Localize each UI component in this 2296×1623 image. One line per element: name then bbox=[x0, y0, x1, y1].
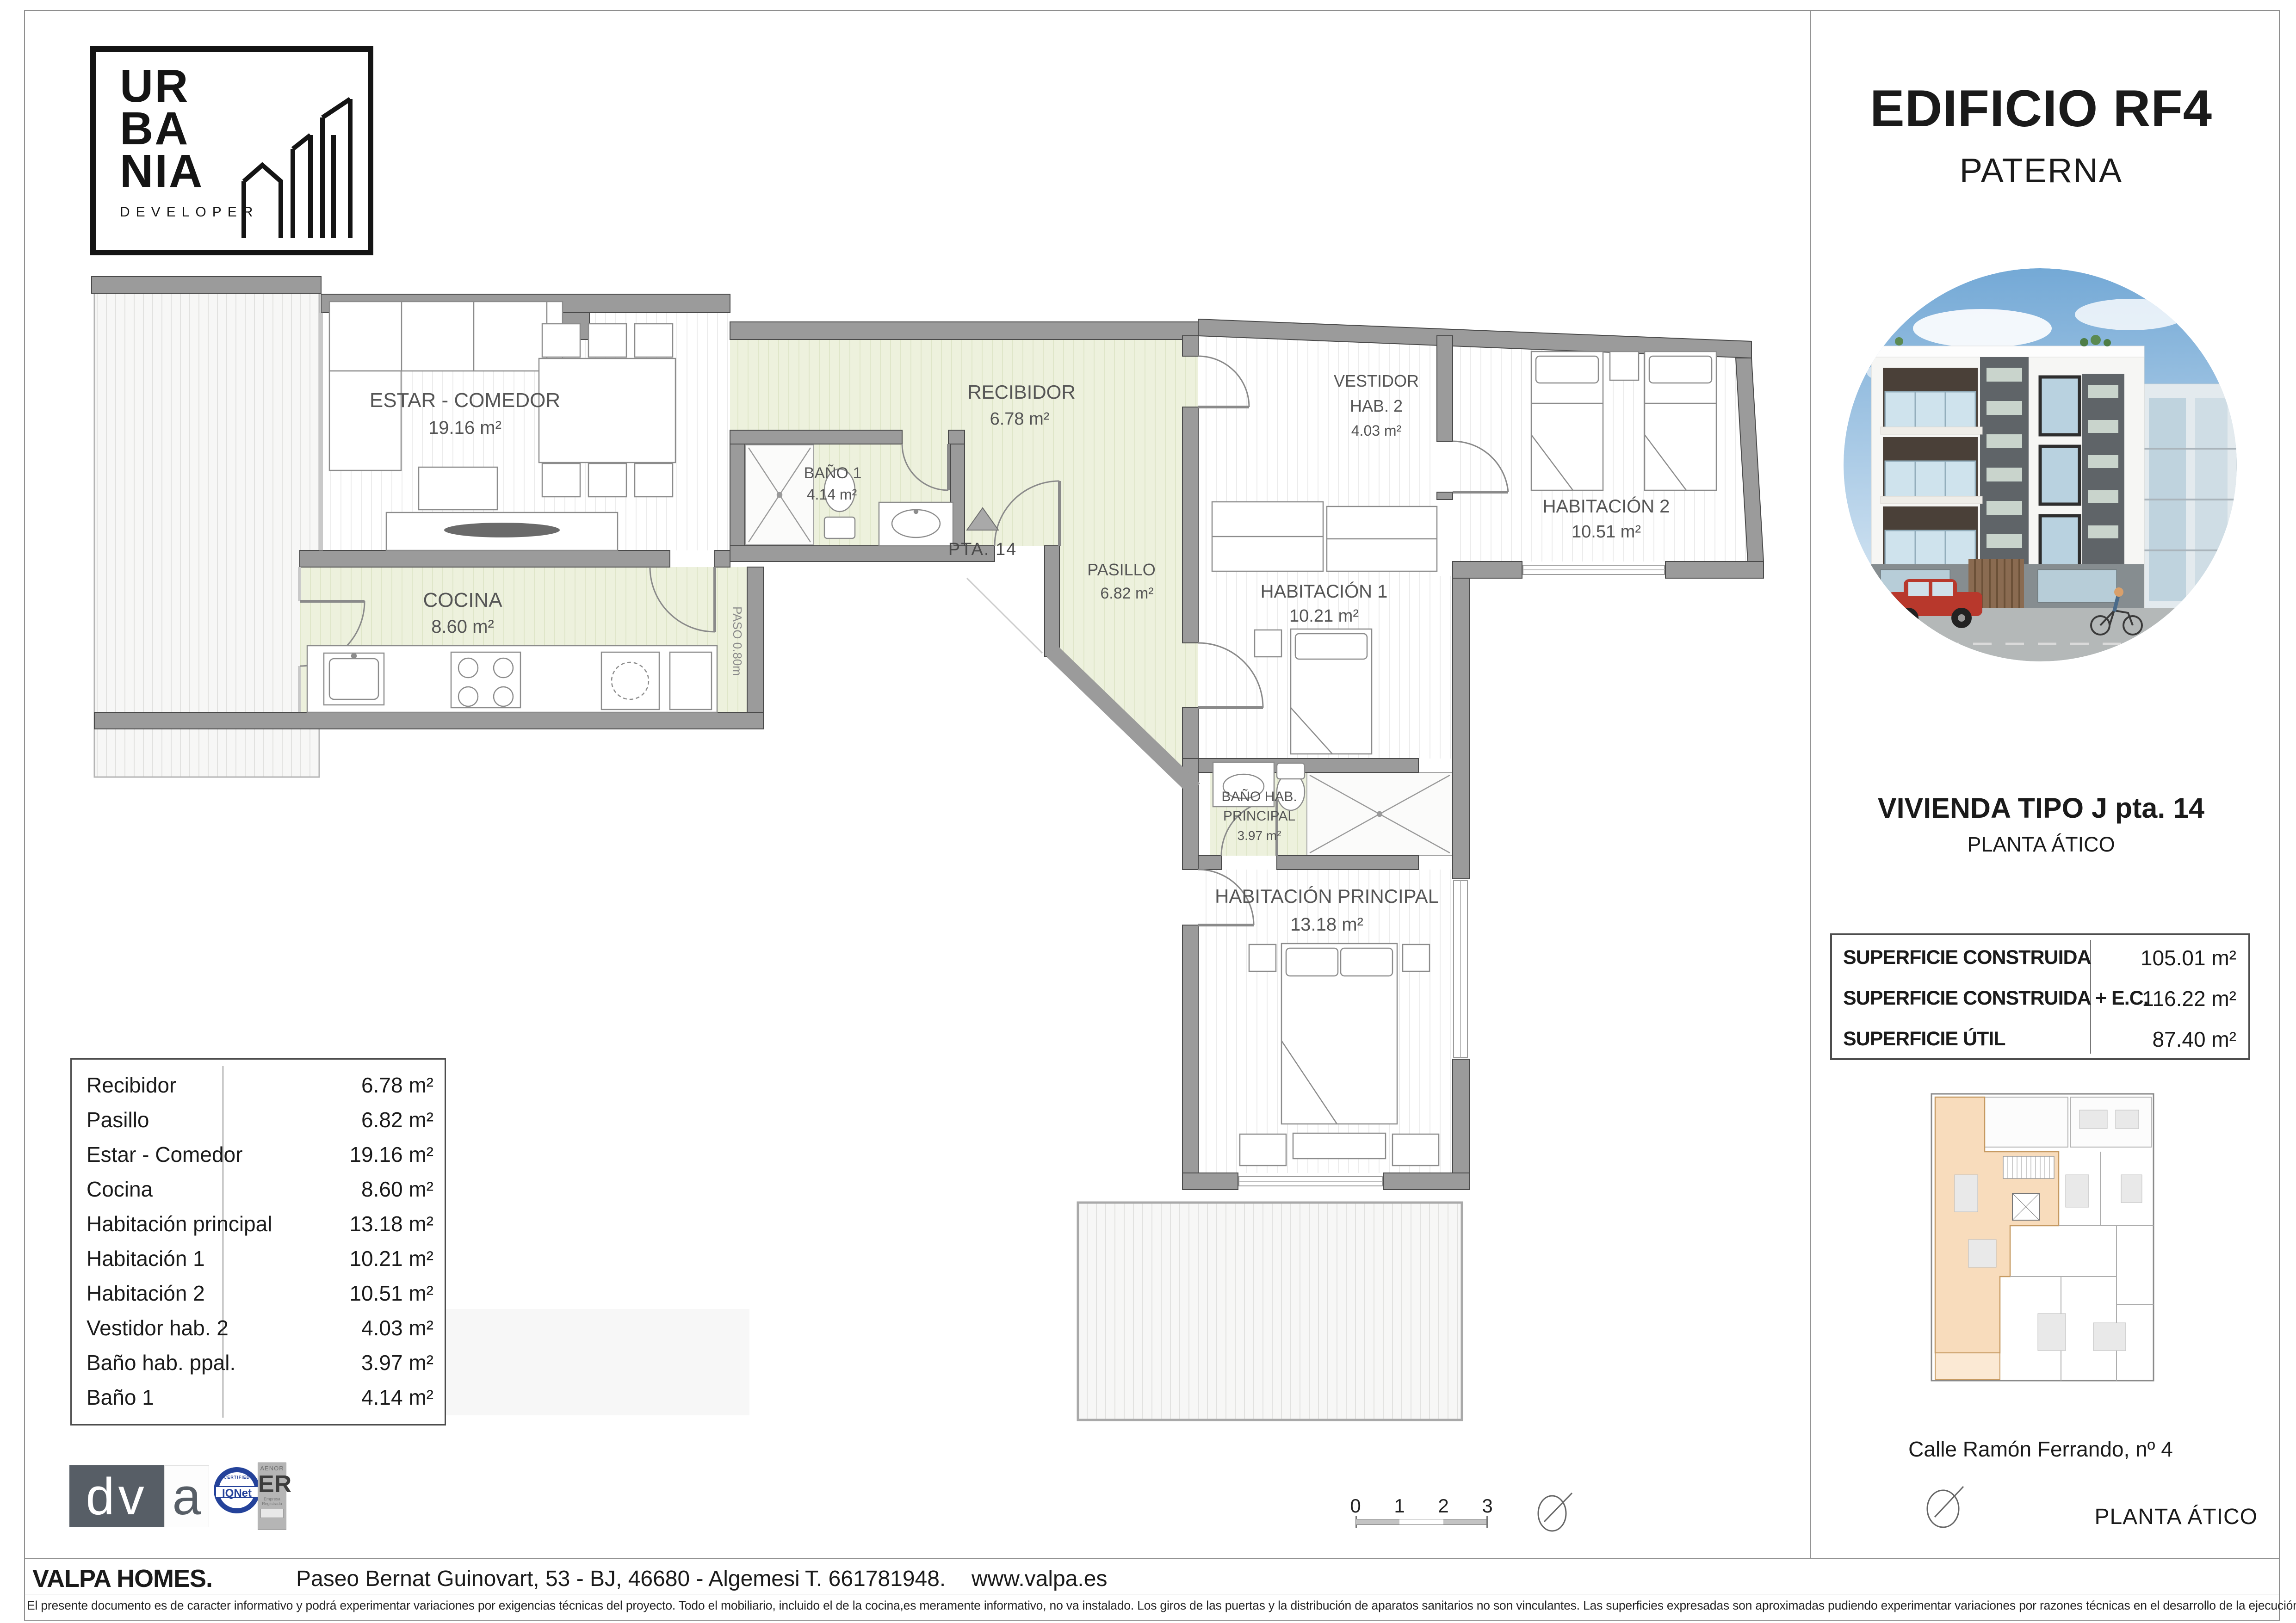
dressing-label-1: VESTIDOR bbox=[1334, 371, 1419, 390]
room-name: Recibidor bbox=[87, 1073, 176, 1098]
aenor-er-mark: ER bbox=[258, 1472, 286, 1497]
surface-label: SUPERFICIE ÚTIL bbox=[1843, 1028, 2005, 1050]
footer-disclaimer: El presente documento es de caracter inf… bbox=[27, 1598, 2280, 1613]
nightstand-m2 bbox=[1403, 944, 1430, 971]
sofa-chaise bbox=[329, 371, 401, 470]
project-title: EDIFICIO RF4 bbox=[1819, 79, 2263, 138]
stamp-area bbox=[439, 1309, 749, 1415]
surface-value: 87.40 m² bbox=[2152, 1027, 2236, 1052]
table-row: Baño 14.14 m² bbox=[72, 1377, 445, 1412]
footer-company: VALPA HOMES. bbox=[32, 1564, 212, 1593]
dva-logo-dark: dv bbox=[69, 1465, 164, 1527]
bedroom1-area: 10.21 m² bbox=[1289, 606, 1359, 626]
center-windows bbox=[2040, 377, 2079, 574]
footer-address: Paseo Bernat Guinovart, 53 - BJ, 46680 -… bbox=[296, 1566, 800, 1592]
bath1-label: BAÑO 1 bbox=[804, 464, 862, 482]
coffee-table bbox=[419, 467, 497, 510]
table-row: Pasillo6.82 m² bbox=[72, 1100, 445, 1135]
room-area: 6.78 m² bbox=[361, 1073, 433, 1098]
tv bbox=[444, 523, 560, 537]
corridor-floor bbox=[1059, 546, 1198, 786]
compass-icon bbox=[1526, 1484, 1581, 1539]
room-area: 4.03 m² bbox=[361, 1315, 433, 1340]
table-row: Habitación principal13.18 m² bbox=[72, 1204, 445, 1239]
living-label: ESTAR - COMEDOR bbox=[370, 389, 560, 412]
table-row: Recibidor6.78 m² bbox=[72, 1065, 445, 1100]
dva-logo: dv a bbox=[69, 1465, 209, 1527]
room-name: Habitación 2 bbox=[87, 1281, 205, 1306]
sofa bbox=[329, 302, 547, 371]
corridor-area: 6.82 m² bbox=[1100, 585, 1153, 602]
panel-divider bbox=[1810, 10, 1811, 1559]
nightstand-2 bbox=[1610, 352, 1639, 380]
hall-label: RECIBIDOR bbox=[967, 381, 1075, 403]
masterbedroom-label: HABITACIÓN PRINCIPAL bbox=[1215, 885, 1439, 907]
hall-area: 6.78 m² bbox=[990, 409, 1050, 429]
unit-title: VIVIENDA TIPO J pta. 14 bbox=[1814, 792, 2268, 824]
building-photo bbox=[1844, 268, 2237, 661]
surface-label: SUPERFICIE CONSTRUIDA bbox=[1843, 946, 2091, 969]
table-row: Habitación 110.21 m² bbox=[72, 1239, 445, 1273]
bedroom2-label: HABITACIÓN 2 bbox=[1543, 496, 1670, 517]
disclaimer-divider bbox=[24, 1594, 2279, 1594]
room-area: 19.16 m² bbox=[349, 1142, 433, 1167]
aenor-sub-2: Registrada bbox=[258, 1501, 286, 1506]
bath1-area: 4.14 m² bbox=[807, 486, 857, 503]
room-name: Baño hab. ppal. bbox=[87, 1350, 235, 1375]
fridge bbox=[670, 652, 712, 710]
urbania-logo-letters: UR BA NIA bbox=[120, 65, 204, 192]
site-plan bbox=[1899, 1082, 2191, 1420]
table-row: Habitación 210.51 m² bbox=[72, 1273, 445, 1308]
room-name: Habitación principal bbox=[87, 1211, 272, 1236]
surface-value: 116.22 m² bbox=[2142, 986, 2236, 1011]
room-area: 13.18 m² bbox=[349, 1211, 433, 1236]
urbania-logo: UR BA NIA DEVELOPER bbox=[90, 46, 373, 255]
scale-tick: 1 bbox=[1390, 1495, 1409, 1517]
footer-divider bbox=[24, 1558, 2279, 1559]
dressing-area: 4.03 m² bbox=[1351, 422, 1402, 439]
kitchen-area: 8.60 m² bbox=[431, 617, 494, 637]
corridor-label: PASILLO bbox=[1087, 560, 1155, 579]
bedroom2-area: 10.51 m² bbox=[1572, 522, 1641, 542]
floor-caption: PLANTA ÁTICO bbox=[2073, 1504, 2258, 1530]
masterbath-label-2: PRINCIPAL bbox=[1223, 808, 1295, 824]
scale-bar-segments bbox=[1355, 1519, 1487, 1525]
iqnet-certified-label: CERTIFIED bbox=[219, 1475, 255, 1480]
balconies bbox=[1881, 368, 1982, 573]
bedroom1-label: HABITACIÓN 1 bbox=[1261, 581, 1388, 602]
living-area: 19.16 m² bbox=[428, 418, 501, 438]
table-row: SUPERFICIE ÚTIL 87.40 m² bbox=[1832, 1017, 2248, 1057]
table-row: Baño hab. ppal.3.97 m² bbox=[72, 1343, 445, 1377]
stairs bbox=[2003, 1156, 2054, 1179]
room-area: 8.60 m² bbox=[361, 1177, 433, 1202]
aenor-badge: AENOR ER Empresa Registrada bbox=[258, 1463, 286, 1530]
bench bbox=[1293, 1133, 1386, 1159]
surface-value: 105.01 m² bbox=[2141, 945, 2236, 970]
footer-phone: T. 661781948. bbox=[805, 1566, 946, 1592]
masterbath-area: 3.97 m² bbox=[1238, 828, 1281, 843]
paso-label: PASO 0.80m bbox=[730, 606, 744, 676]
aenor-cert-box bbox=[260, 1509, 284, 1518]
logo-line-1: UR bbox=[120, 65, 204, 107]
room-area: 10.21 m² bbox=[349, 1246, 433, 1271]
room-name: Estar - Comedor bbox=[87, 1142, 242, 1167]
table-row: SUPERFICIE CONSTRUIDA + E.C. 116.22 m² bbox=[1832, 976, 2248, 1017]
surface-label: SUPERFICIE CONSTRUIDA + E.C. bbox=[1843, 987, 2148, 1010]
room-name: Vestidor hab. 2 bbox=[87, 1315, 229, 1340]
terrace-bottom-floor bbox=[1078, 1203, 1462, 1420]
entrance-label: PTA. 14 bbox=[948, 540, 1017, 559]
scale-bar: 0 1 2 3 bbox=[1355, 1495, 1494, 1527]
room-name: Baño 1 bbox=[87, 1385, 154, 1410]
table-row: SUPERFICIE CONSTRUIDA 105.01 m² bbox=[1832, 935, 2248, 976]
footer-website-link[interactable]: www.valpa.es bbox=[972, 1566, 1107, 1592]
project-subtitle: PATERNA bbox=[1819, 151, 2263, 190]
room-name: Cocina bbox=[87, 1177, 153, 1202]
table-row: Cocina8.60 m² bbox=[72, 1169, 445, 1204]
scale-tick: 2 bbox=[1434, 1495, 1453, 1517]
room-name: Pasillo bbox=[87, 1107, 149, 1132]
nightstand-m1 bbox=[1249, 944, 1276, 971]
room-area: 4.14 m² bbox=[361, 1385, 433, 1410]
terrace-left-floor bbox=[94, 279, 319, 777]
plan-sheet: UR BA NIA DEVELOPER bbox=[0, 0, 2296, 1623]
oven bbox=[601, 652, 659, 710]
dva-logo-light: a bbox=[164, 1465, 209, 1527]
room-name: Habitación 1 bbox=[87, 1246, 205, 1271]
highlighted-terrace bbox=[1935, 1353, 2000, 1380]
masterbath-label-1: BAÑO HAB. bbox=[1221, 789, 1297, 804]
masterbedroom-area: 13.18 m² bbox=[1290, 914, 1363, 935]
north-arrow-icon bbox=[1915, 1478, 1975, 1534]
scale-tick: 3 bbox=[1478, 1495, 1497, 1517]
logo-line-3: NIA bbox=[120, 150, 204, 192]
room-area: 3.97 m² bbox=[361, 1350, 433, 1375]
unit-floor: PLANTA ÁTICO bbox=[1814, 833, 2268, 857]
room-area: 10.51 m² bbox=[349, 1281, 433, 1306]
logo-line-2: BA bbox=[120, 107, 204, 150]
stair-line bbox=[967, 578, 1042, 653]
kitchen-label: COCINA bbox=[423, 589, 502, 611]
iqnet-badge: CERTIFIED IQNet bbox=[214, 1467, 260, 1513]
logo-skyline-icon bbox=[224, 66, 363, 241]
site-address: Calle Ramón Ferrando, nº 4 bbox=[1830, 1437, 2251, 1462]
room-area-table: Recibidor6.78 m² Pasillo6.82 m² Estar - … bbox=[70, 1058, 446, 1426]
table-row: Estar - Comedor19.16 m² bbox=[72, 1135, 445, 1169]
nightstand-1 bbox=[1255, 630, 1281, 657]
room-area: 6.82 m² bbox=[361, 1107, 433, 1132]
scale-tick: 0 bbox=[1346, 1495, 1365, 1517]
scale-cap bbox=[1486, 1516, 1488, 1528]
iqnet-label: IQNet bbox=[219, 1487, 255, 1500]
table-row: Vestidor hab. 24.03 m² bbox=[72, 1308, 445, 1343]
surface-table: SUPERFICIE CONSTRUIDA 105.01 m² SUPERFIC… bbox=[1830, 933, 2250, 1060]
dressing-label-2: HAB. 2 bbox=[1350, 396, 1403, 415]
